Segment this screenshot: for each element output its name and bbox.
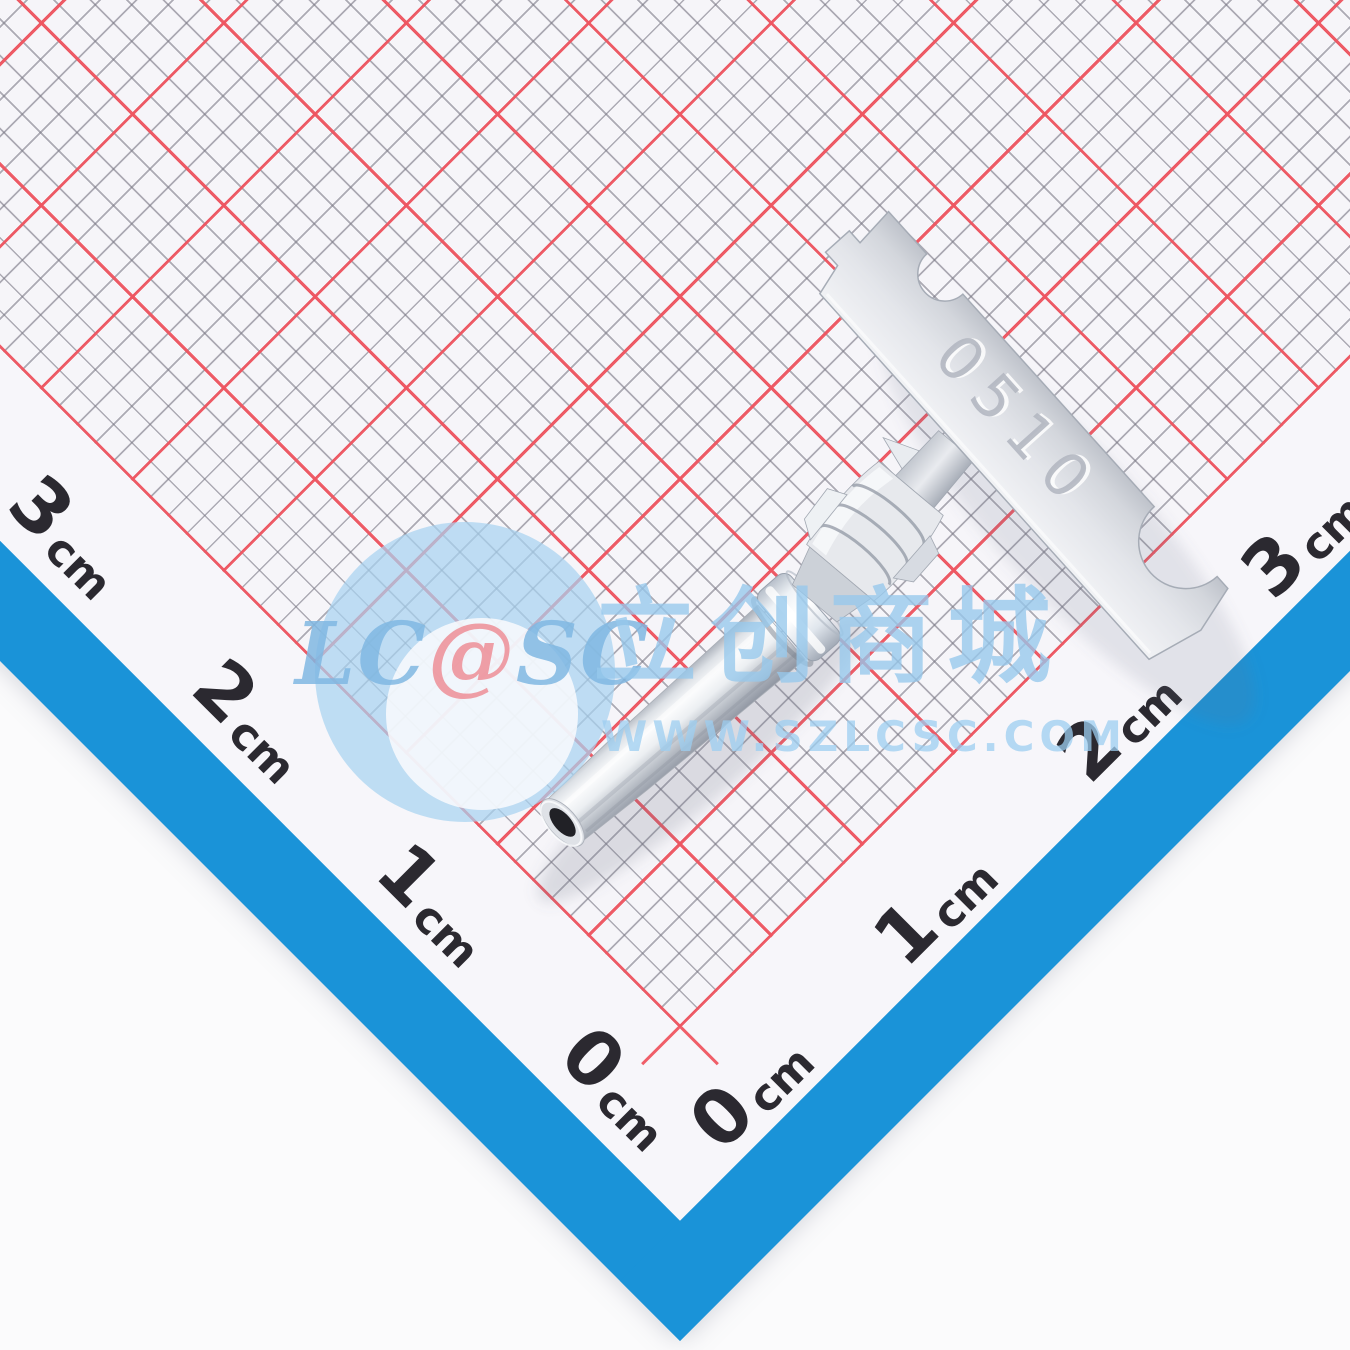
- graph-paper: 0 cm 1 cm 2 cm 3 cm 0 cm 1 cm 2 cm 3: [0, 0, 1350, 1341]
- grid-border-overhang-vertical: [680, 1026, 719, 1065]
- grid-border-overhang-horizontal: [641, 1026, 680, 1065]
- millimeter-grid: [0, 0, 1350, 1028]
- photo-stage: 0 cm 1 cm 2 cm 3 cm 0 cm 1 cm 2 cm 3: [0, 0, 1350, 1350]
